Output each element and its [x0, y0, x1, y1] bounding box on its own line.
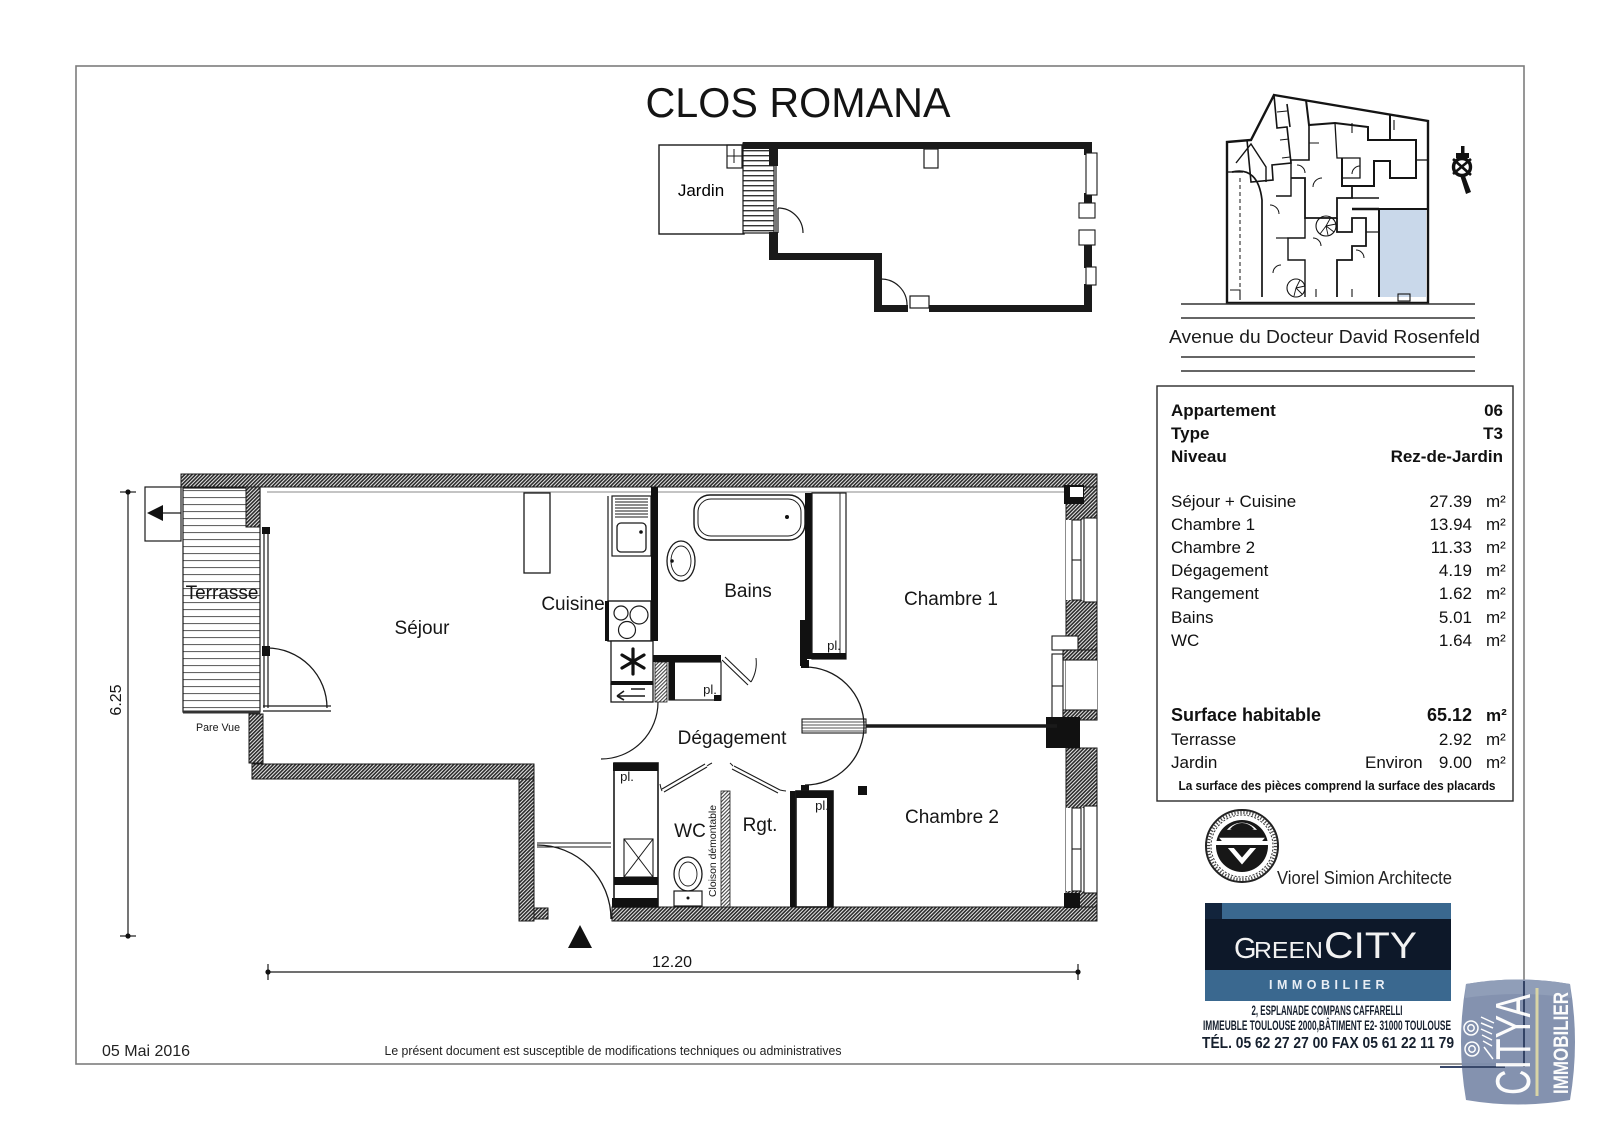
svg-text:m²: m²	[1486, 584, 1506, 603]
svg-text:CLOS ROMANA: CLOS ROMANA	[646, 79, 951, 126]
svg-text:Environ: Environ	[1365, 753, 1423, 772]
svg-text:IMMOBILIER: IMMOBILIER	[1269, 978, 1389, 992]
svg-text:Type: Type	[1171, 424, 1209, 443]
svg-text:Rangement: Rangement	[1171, 584, 1259, 603]
svg-text:Appartement: Appartement	[1171, 401, 1276, 420]
svg-text:Bains: Bains	[1171, 608, 1214, 627]
svg-text:2.92: 2.92	[1439, 730, 1472, 749]
svg-text:Dégagement: Dégagement	[678, 728, 788, 749]
svg-text:Dégagement: Dégagement	[1171, 561, 1269, 580]
svg-text:Chambre 1: Chambre 1	[904, 589, 998, 610]
svg-text:m²: m²	[1486, 608, 1506, 627]
svg-text:WC: WC	[1171, 631, 1199, 650]
svg-text:Séjour + Cuisine: Séjour + Cuisine	[1171, 492, 1296, 511]
svg-text:WC: WC	[674, 821, 706, 842]
svg-text:Avenue du Docteur David Rosenf: Avenue du Docteur David Rosenfeld	[1169, 327, 1480, 347]
svg-text:2, ESPLANADE COMPANS CAFFARELL: 2, ESPLANADE COMPANS CAFFARELLI	[1252, 1003, 1403, 1018]
svg-text:m²: m²	[1486, 730, 1506, 749]
svg-text:9.00: 9.00	[1439, 753, 1472, 772]
svg-text:IMMEUBLE TOULOUSE 2000,BÂTIMEN: IMMEUBLE TOULOUSE 2000,BÂTIMENT E2- 3100…	[1203, 1018, 1451, 1033]
svg-text:m²: m²	[1486, 515, 1506, 534]
svg-text:Séjour: Séjour	[395, 618, 451, 639]
svg-text:Chambre 2: Chambre 2	[905, 807, 999, 828]
svg-text:Terrasse: Terrasse	[186, 583, 259, 604]
svg-text:Chambre 2: Chambre 2	[1171, 538, 1255, 557]
svg-text:4.19: 4.19	[1439, 561, 1472, 580]
svg-text:m²: m²	[1486, 538, 1506, 557]
svg-text:Rgt.: Rgt.	[743, 815, 778, 836]
svg-text:27.39: 27.39	[1429, 492, 1472, 511]
svg-text:IMMOBILIER: IMMOBILIER	[1550, 992, 1573, 1094]
svg-text:Cuisine: Cuisine	[541, 594, 604, 615]
svg-text:1.62: 1.62	[1439, 584, 1472, 603]
svg-text:m²: m²	[1486, 706, 1507, 725]
svg-text:TÉL. 05 62 27 27 00 FAX 05 61: TÉL. 05 62 27 27 00 FAX 05 61 22 11 79	[1202, 1033, 1454, 1052]
svg-text:11.33: 11.33	[1431, 538, 1472, 557]
svg-text:65.12: 65.12	[1427, 705, 1472, 725]
svg-text:Jardin: Jardin	[678, 181, 724, 200]
svg-text:5.01: 5.01	[1439, 608, 1472, 627]
svg-text:La surface des pièces comprend: La surface des pièces comprend la surfac…	[1179, 778, 1496, 793]
svg-text:6.25: 6.25	[108, 684, 125, 715]
svg-text:m²: m²	[1486, 753, 1506, 772]
svg-text:m²: m²	[1486, 631, 1506, 650]
svg-text:CITYA: CITYA	[1487, 994, 1541, 1095]
svg-text:m²: m²	[1486, 492, 1506, 511]
svg-text:Viorel Simion Architecte: Viorel Simion Architecte	[1277, 868, 1452, 888]
svg-text:Jardin: Jardin	[1171, 753, 1217, 772]
svg-text:pl.: pl.	[827, 638, 841, 653]
svg-text:Pare Vue: Pare Vue	[196, 722, 240, 734]
svg-text:1.64: 1.64	[1439, 631, 1472, 650]
svg-text:Terrasse: Terrasse	[1171, 730, 1236, 749]
svg-text:Bains: Bains	[724, 581, 772, 602]
svg-text:CITY: CITY	[1324, 925, 1417, 966]
svg-text:Chambre 1: Chambre 1	[1171, 515, 1255, 534]
svg-text:Niveau: Niveau	[1171, 447, 1227, 466]
svg-text:pl.: pl.	[815, 798, 829, 813]
svg-text:pl.: pl.	[703, 682, 717, 697]
svg-text:pl.: pl.	[620, 769, 634, 784]
svg-text:T3: T3	[1483, 424, 1503, 443]
svg-text:Rez-de-Jardin: Rez-de-Jardin	[1391, 447, 1503, 466]
svg-text:m²: m²	[1486, 561, 1506, 580]
svg-text:Le présent document est suscep: Le présent document est susceptible de m…	[385, 1043, 842, 1058]
svg-text:06: 06	[1484, 401, 1503, 420]
svg-text:12.20: 12.20	[652, 954, 692, 971]
svg-text:13.94: 13.94	[1429, 515, 1472, 534]
svg-text:Surface habitable: Surface habitable	[1171, 705, 1321, 725]
svg-text:Cloison démontable: Cloison démontable	[707, 805, 719, 897]
svg-text:05 Mai 2016: 05 Mai 2016	[102, 1043, 190, 1060]
svg-text:REEN: REEN	[1254, 937, 1323, 963]
